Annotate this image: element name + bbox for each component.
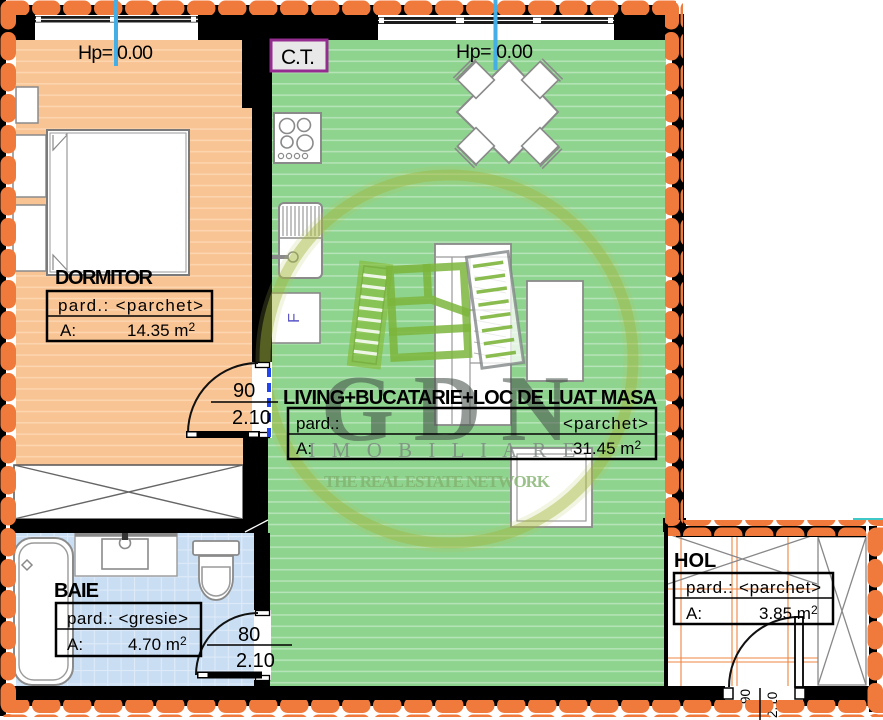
svg-text:pard.:: pard.: [296, 414, 339, 433]
svg-text:A:: A: [60, 321, 76, 340]
svg-text:F: F [286, 313, 303, 323]
svg-text:2.10: 2.10 [236, 650, 275, 672]
svg-text:90: 90 [233, 380, 255, 402]
svg-text:A:: A: [296, 439, 312, 458]
svg-text:THE REAL ESTATE NETWORK: THE REAL ESTATE NETWORK [324, 472, 551, 491]
svg-text:A:: A: [686, 604, 702, 623]
svg-text:80: 80 [238, 624, 260, 646]
svg-text:4.70 m2: 4.70 m2 [128, 634, 187, 654]
svg-text:<parchet>: <parchet> [563, 414, 648, 433]
svg-text:14.35 m2: 14.35 m2 [127, 320, 195, 340]
svg-text:31.45 m2: 31.45 m2 [573, 438, 641, 458]
svg-text:3.85 m2: 3.85 m2 [759, 603, 818, 623]
svg-text:C.T.: C.T. [281, 46, 315, 69]
svg-text:Hp= 0.00: Hp= 0.00 [456, 41, 533, 63]
svg-text:DORMITOR: DORMITOR [55, 267, 154, 289]
svg-text:2.10: 2.10 [232, 407, 271, 429]
svg-text:HOL: HOL [674, 550, 716, 572]
svg-text:pard.: <gresie>: pard.: <gresie> [67, 609, 188, 628]
svg-text:Hp= 0.00: Hp= 0.00 [78, 42, 153, 64]
svg-text:pard.: <parchet>: pard.: <parchet> [58, 296, 203, 315]
svg-text:A:: A: [67, 635, 83, 654]
svg-text:pard.: <parchet>: pard.: <parchet> [686, 578, 821, 597]
svg-text:BAIE: BAIE [54, 580, 99, 602]
svg-text:LIVING+BUCATARIE+LOC DE LUAT M: LIVING+BUCATARIE+LOC DE LUAT MASA [283, 387, 657, 409]
